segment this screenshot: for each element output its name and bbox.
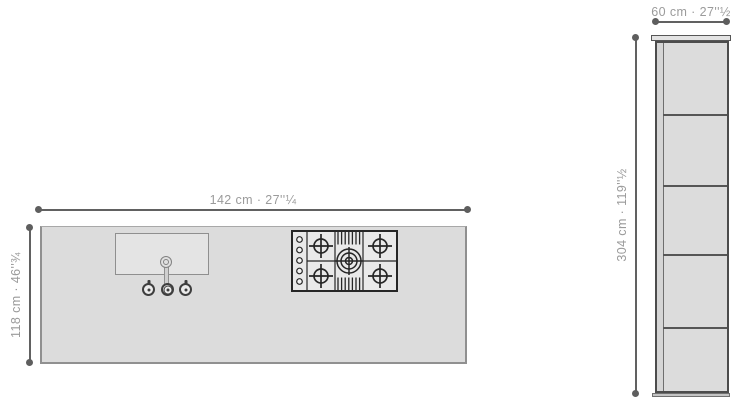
cabinet-width-label: 60 cm · 27''½ <box>631 4 738 20</box>
cabinet-height-label: 304 cm · 119''½ <box>614 105 630 325</box>
faucet-handle-left-icon <box>142 283 155 296</box>
dimension-endpoint-dot <box>35 206 42 213</box>
shelf-divider-line <box>663 254 727 256</box>
island-width-dimension: 142 cm · 27''¼ <box>38 192 468 212</box>
faucet-handle-right-icon <box>179 283 192 296</box>
faucet-lever <box>147 280 150 285</box>
dimension-endpoint-dot <box>464 206 471 213</box>
island-width-label: 142 cm · 27''¼ <box>38 192 468 208</box>
island-depth-label: 118 cm · 46''¾ <box>8 220 24 370</box>
tall-cabinet <box>655 41 729 393</box>
dimension-endpoint-dot <box>723 18 730 25</box>
dimension-line <box>38 209 468 211</box>
cabinet-width-dimension: 60 cm · 27''½ <box>655 4 727 24</box>
island-countertop <box>40 226 467 364</box>
sink-cutout <box>115 233 209 275</box>
gas-cooktop-icon <box>291 230 398 292</box>
dimension-endpoint-dot <box>632 390 639 397</box>
island-depth-dimension: 118 cm · 46''¾ <box>26 226 34 364</box>
dimension-line <box>655 21 727 23</box>
dimension-line <box>635 36 637 395</box>
dimension-endpoint-dot <box>26 224 33 231</box>
dimension-line <box>29 226 31 364</box>
dimension-endpoint-dot <box>26 359 33 366</box>
shelf-divider-line <box>663 327 727 329</box>
faucet-base-icon <box>160 256 172 268</box>
kitchen-layout-diagram: 142 cm · 27''¼ 118 cm · 46''¾ <box>0 0 738 410</box>
dimension-endpoint-dot <box>632 34 639 41</box>
cabinet-side-edge <box>657 43 664 391</box>
cabinet-height-dimension: 304 cm · 119''½ <box>632 36 640 395</box>
dimension-endpoint-dot <box>652 18 659 25</box>
cabinet-base-panel <box>652 393 730 397</box>
shelf-divider-line <box>663 114 727 116</box>
control-knob-center-icon <box>161 283 174 296</box>
shelf-divider-line <box>663 185 727 187</box>
faucet-lever <box>184 280 187 285</box>
